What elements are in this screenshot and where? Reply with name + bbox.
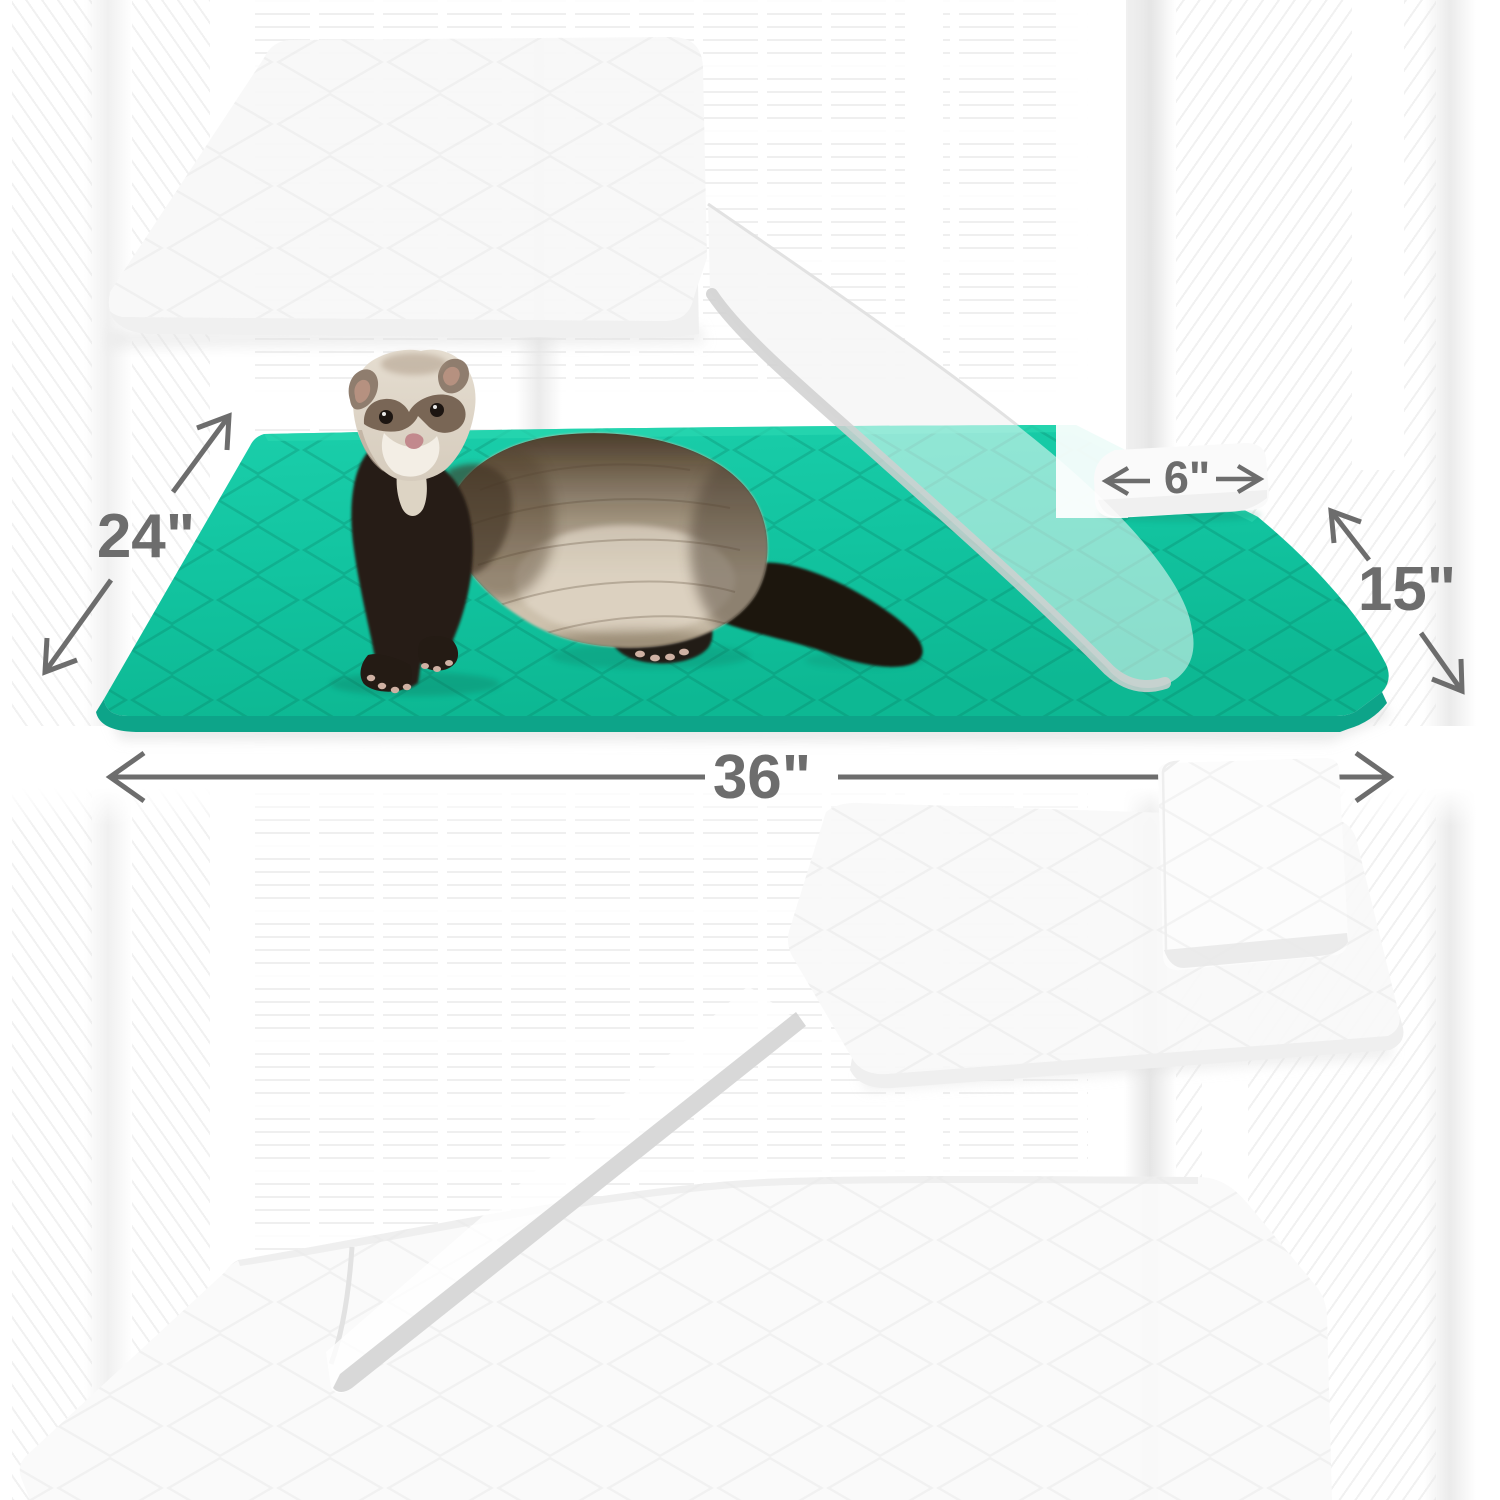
svg-text:15": 15" [1358,555,1456,624]
svg-text:6": 6" [1164,452,1210,503]
svg-text:24": 24" [97,502,195,571]
svg-text:36": 36" [713,743,811,812]
